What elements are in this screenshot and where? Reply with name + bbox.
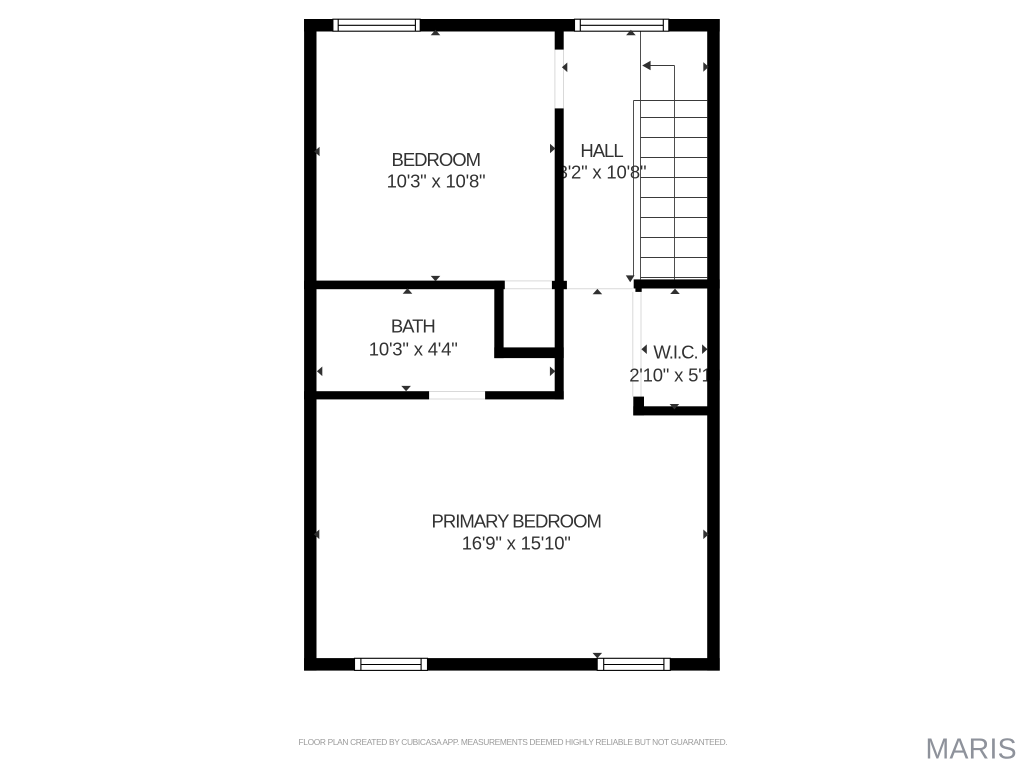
svg-text:FLOOR PLAN CREATED BY CUBICASA: FLOOR PLAN CREATED BY CUBICASA APP. MEAS…: [299, 737, 728, 747]
svg-text:MARIS: MARIS: [926, 734, 1017, 766]
svg-text:3'2" x 10'8": 3'2" x 10'8": [558, 161, 647, 182]
svg-text:PRIMARY BEDROOM: PRIMARY BEDROOM: [432, 511, 601, 532]
svg-text:16'9" x 15'10": 16'9" x 15'10": [462, 533, 571, 554]
svg-text:W.I.C.: W.I.C.: [653, 342, 697, 363]
svg-text:HALL: HALL: [580, 140, 623, 161]
svg-text:BATH: BATH: [391, 316, 435, 337]
svg-text:10'3" x 10'8": 10'3" x 10'8": [387, 171, 486, 192]
svg-text:BEDROOM: BEDROOM: [392, 149, 481, 170]
svg-text:10'3" x 4'4": 10'3" x 4'4": [369, 338, 458, 359]
